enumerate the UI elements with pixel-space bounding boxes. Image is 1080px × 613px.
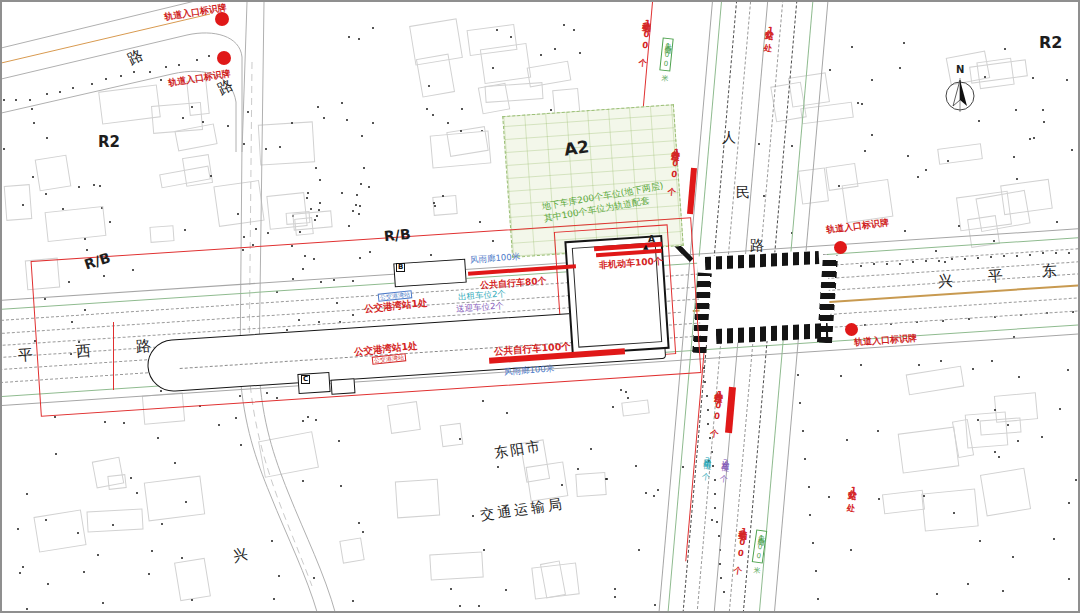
road-name-pxl-3: 路 [135,338,151,354]
entrance-marker-c: C [301,375,310,384]
small-structure [331,378,356,395]
road-name-pxl-1: 平 [17,347,33,363]
road-name-xing-bottom: 兴 [232,547,250,565]
zone-label-r2-right: R2 [1039,35,1062,51]
road-name-pxl-2: 西 [75,343,91,359]
site-plan-drawing: R2 R2 R/B R/B A2 人 民 路 兴 平 东 平 西 路 路 路 兴… [0,0,1080,613]
zone-label-r2-left: R2 [98,135,120,150]
zone-label-rb-mid: R/B [383,227,411,244]
entrance-marker-a: A [648,235,655,244]
facility-label-bus-stop-v: 公交站1处 [848,482,858,498]
rail-entrance-sign-dot [215,12,229,26]
zone-label-a2: A2 [563,138,590,158]
road-name-xpd-2: 平 [987,268,1003,284]
rail-entrance-sign-dot [217,51,231,65]
facility-label-dropoff-v: 送迎车位2个 [720,454,730,470]
road-name-xpd-3: 东 [1041,263,1057,279]
red-boundary-segment [113,322,114,390]
road-name-renmin-2: 民 [736,185,750,199]
road-name-renmin-1: 人 [722,130,736,144]
rail-entrance-sign-dot [834,241,847,254]
entrance-marker-b: B [396,263,405,272]
north-letter: N [956,64,964,75]
road-name-renmin-3: 路 [750,238,764,252]
north-arrow-icon: N [940,62,984,120]
entrance-marker-a-flag: ▲ [643,244,648,251]
road-name-xpd-1: 兴 [937,273,953,289]
facility-label-taxi-v: 出租车位2个 [702,452,712,468]
facility-label-bus-stop-v: 公交站1处 [765,22,775,38]
rail-entrance-sign-dot [845,323,858,336]
